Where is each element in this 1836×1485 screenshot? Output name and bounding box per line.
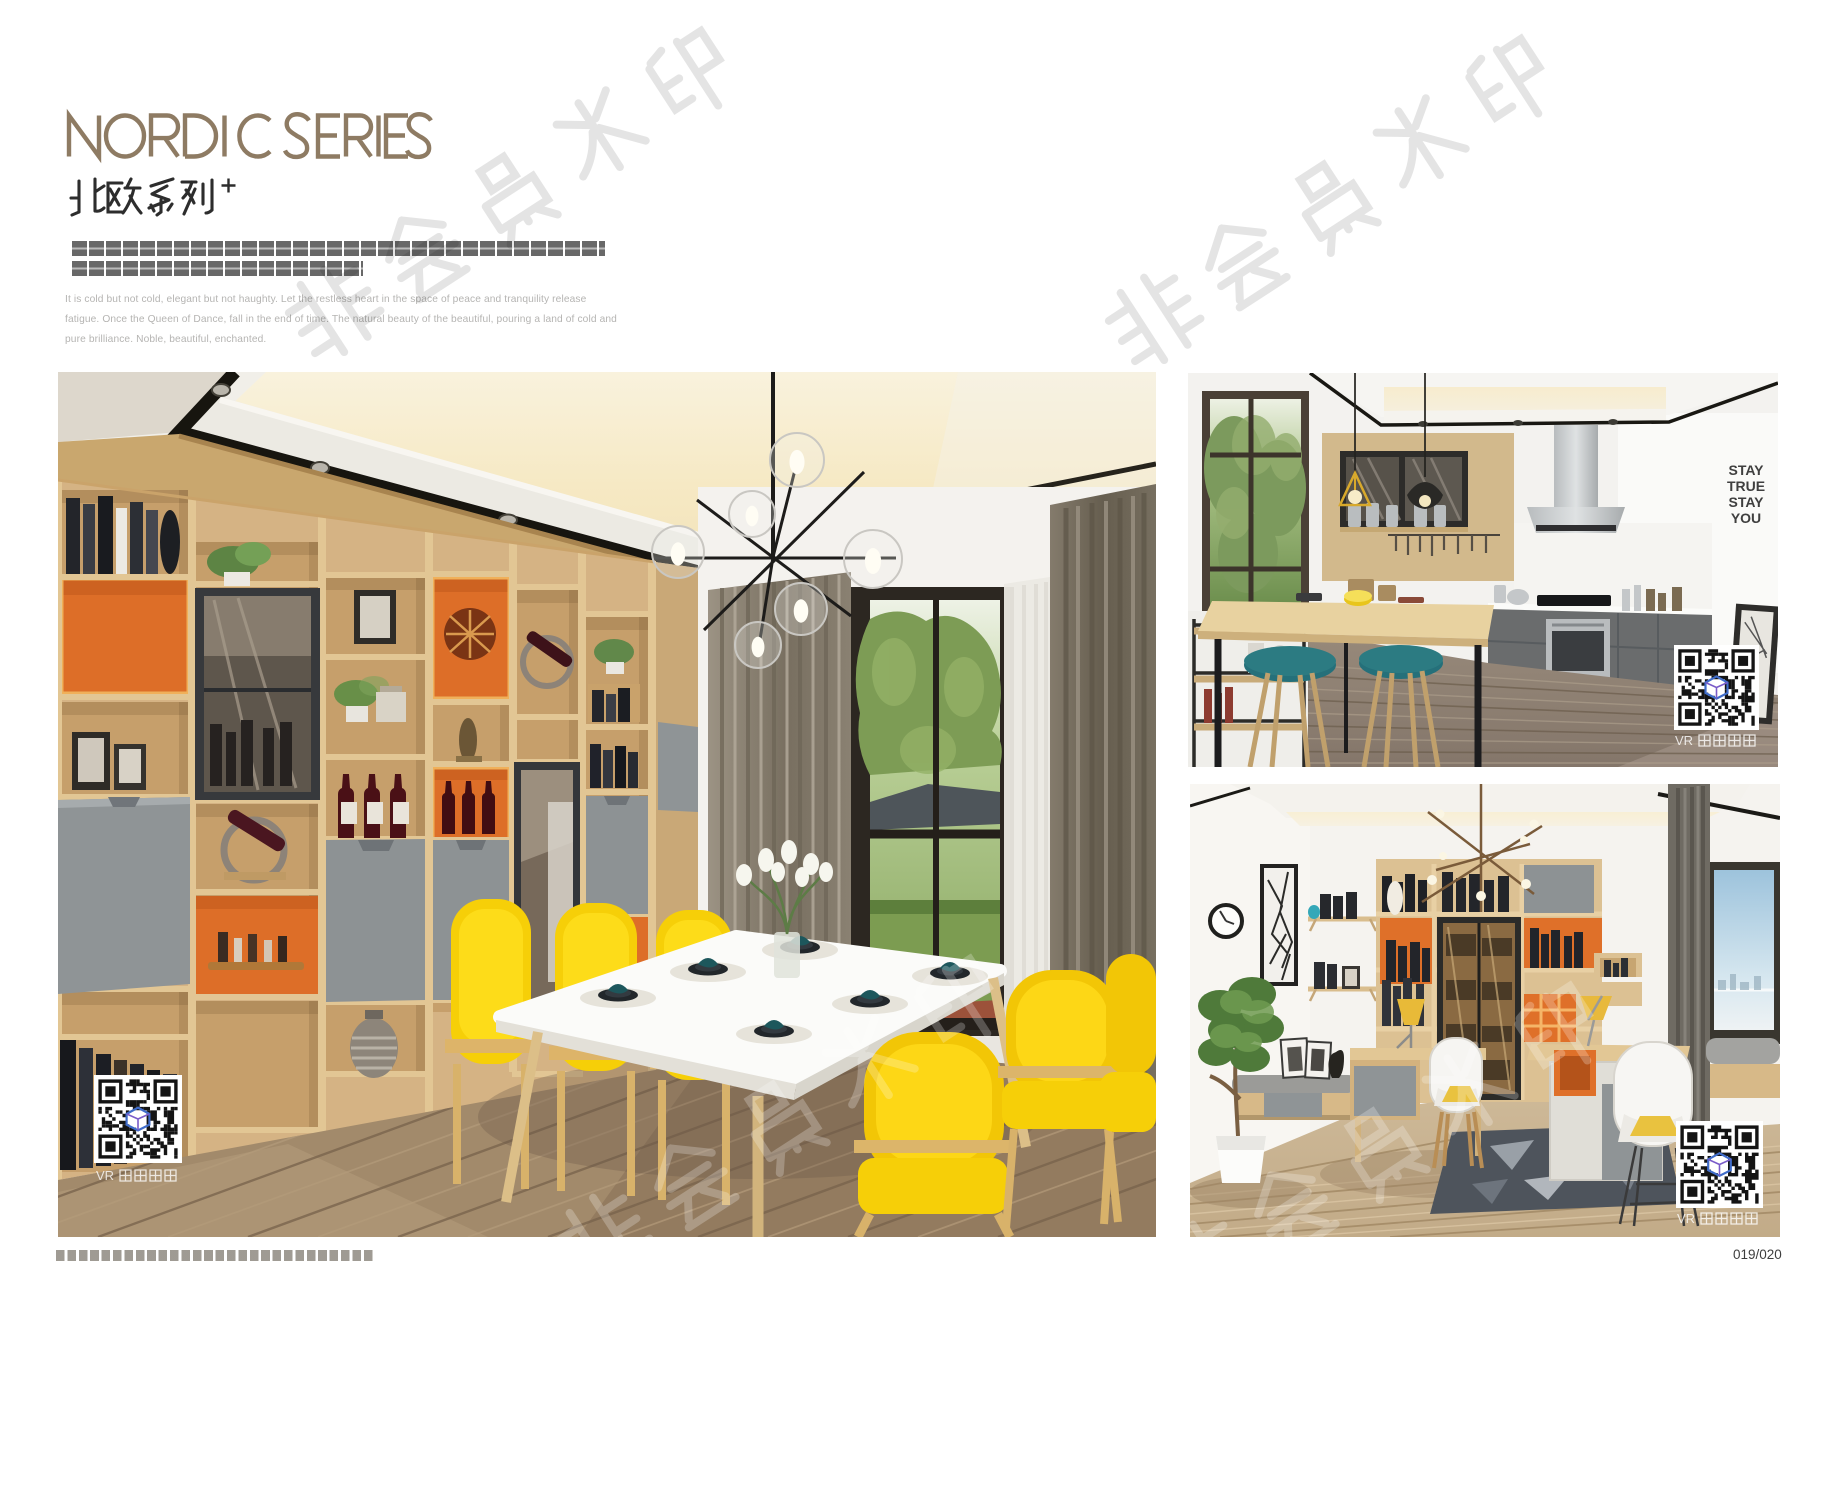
svg-text:STAY: STAY <box>1728 462 1764 478</box>
svg-text:TRUE: TRUE <box>1727 478 1765 494</box>
svg-text:VR: VR <box>96 1168 114 1183</box>
svg-text:STAY: STAY <box>1728 494 1764 510</box>
svg-text:YOU: YOU <box>1731 510 1761 526</box>
svg-text:VR: VR <box>1675 733 1693 748</box>
